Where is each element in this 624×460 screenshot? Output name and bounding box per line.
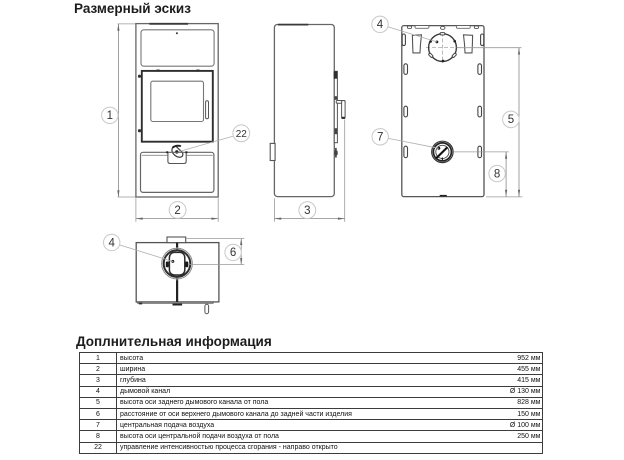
svg-text:5: 5 [508, 114, 514, 126]
svg-text:3: 3 [304, 205, 310, 217]
svg-text:7: 7 [377, 132, 383, 144]
svg-text:8: 8 [494, 168, 500, 180]
svg-text:22: 22 [236, 129, 248, 140]
svg-text:2: 2 [174, 205, 180, 217]
svg-text:4: 4 [377, 19, 384, 31]
svg-text:4: 4 [108, 237, 115, 249]
svg-text:6: 6 [230, 247, 236, 259]
svg-text:1: 1 [107, 110, 113, 122]
